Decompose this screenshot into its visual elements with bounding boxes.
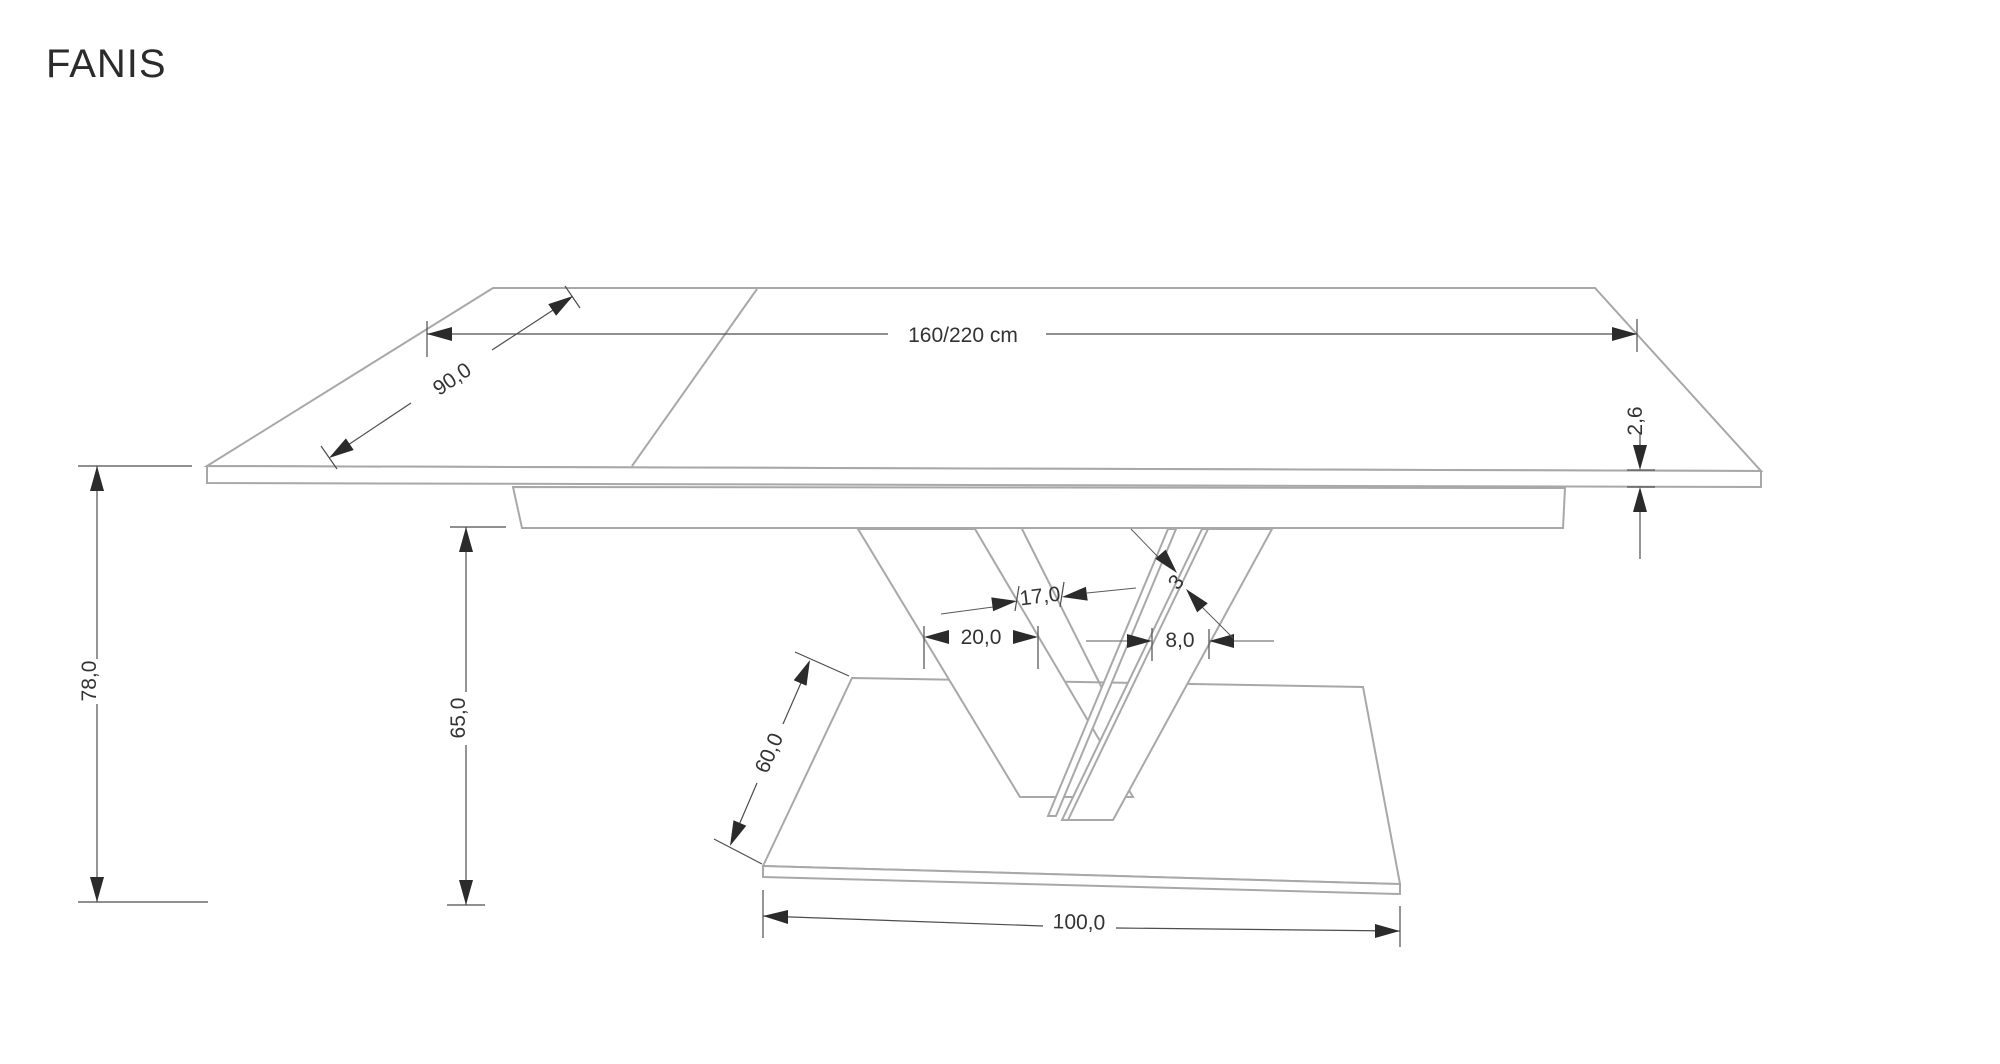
- dim-height-label: 78,0: [78, 661, 101, 702]
- dim-base-depth-label: 60,0: [751, 730, 788, 777]
- drawing-sheet: FANIS 160/220 cm 90,0 2,6 78,0 65,0 20,0…: [0, 0, 2000, 1064]
- dim-top-thickness-label: 2,6: [1624, 406, 1647, 435]
- technical-drawing: FANIS 160/220 cm 90,0 2,6 78,0 65,0 20,0…: [0, 0, 2000, 1064]
- dim-leg-side-width-label: 8,0: [1165, 629, 1194, 652]
- apron: [513, 487, 1565, 528]
- dim-leg-front-width-label: 20,0: [961, 626, 1002, 649]
- dim-length-label: 160/220 cm: [908, 324, 1018, 347]
- dim-leg-gap-label: 17,0: [1018, 583, 1061, 611]
- dim-pedestal-height-label: 65,0: [447, 698, 470, 739]
- drawing-title: FANIS: [46, 42, 167, 86]
- dim-base-length-label: 100,0: [1052, 910, 1105, 934]
